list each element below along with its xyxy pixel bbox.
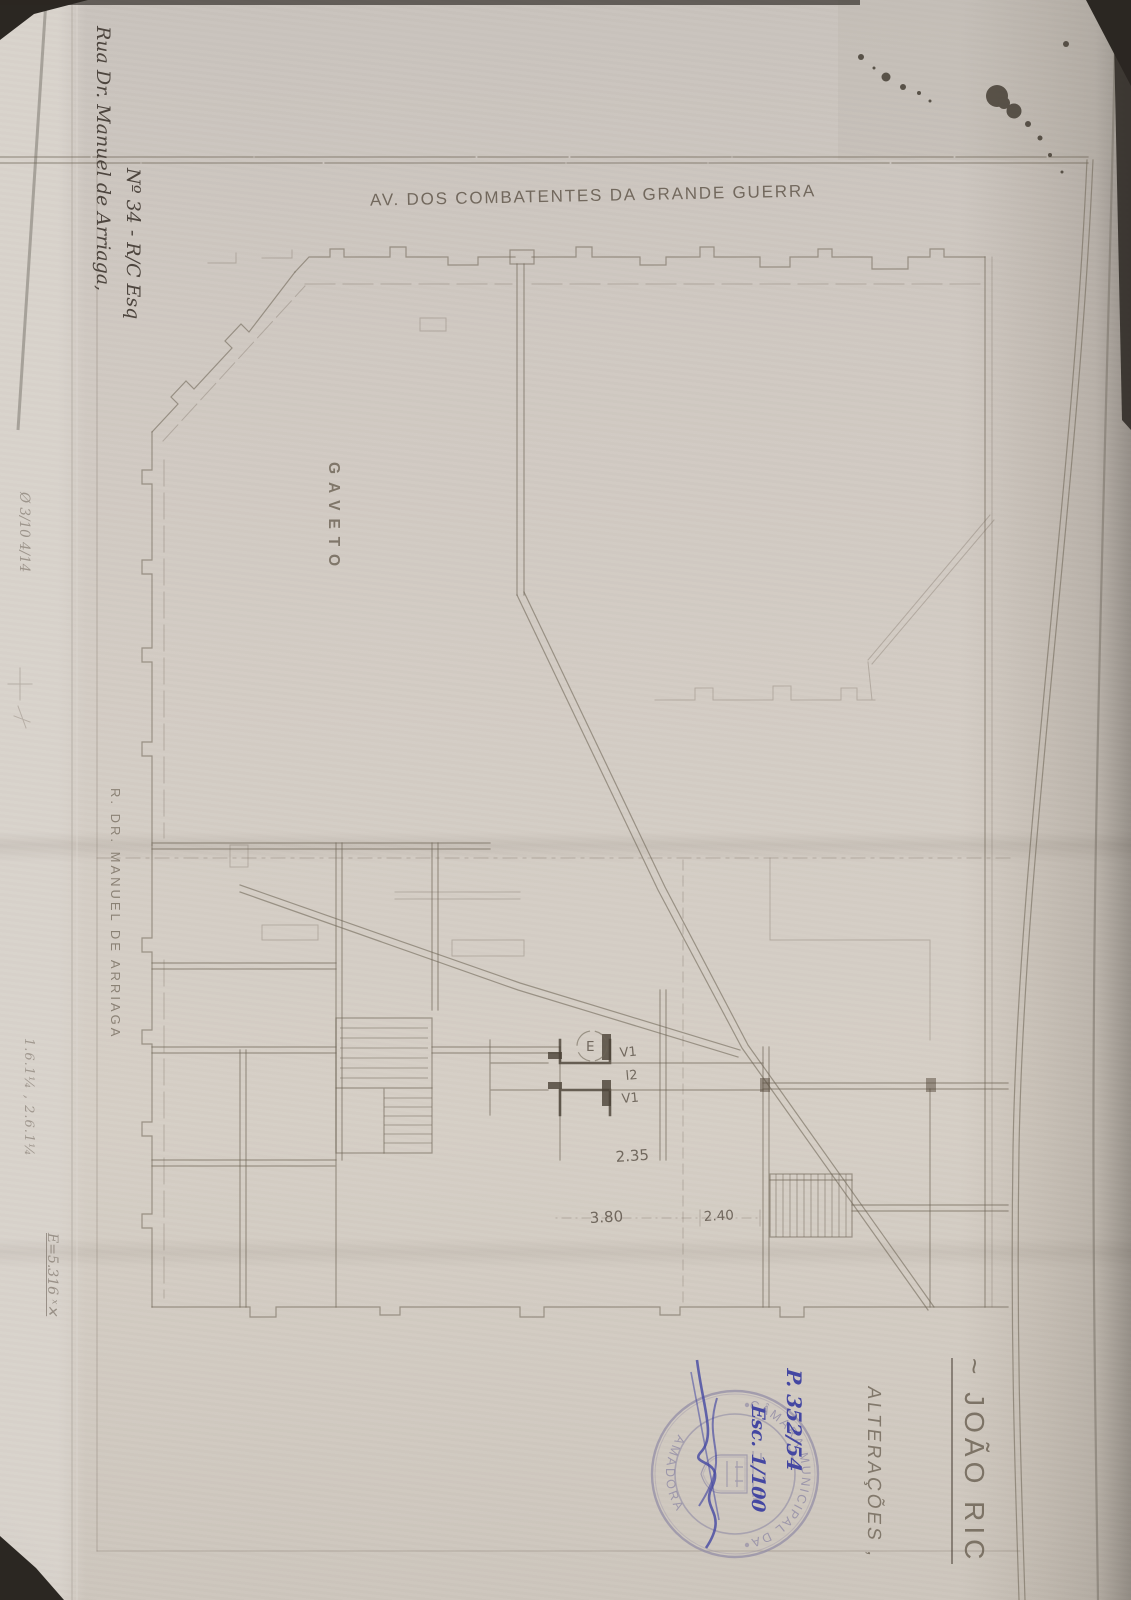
svg-text:AMADORA: AMADORA [663,1433,688,1515]
window-label-v1-bottom: V1 [621,1091,639,1107]
gaveto-corner-label: GAVETO [324,462,342,574]
street-left-label: R. DR. MANUEL DE ARRIAGA [108,788,123,1039]
dimension-3-80: 3.80 [589,1207,623,1227]
floor-plan-linework [8,247,1010,1317]
door-label-l2: l2 [625,1068,638,1084]
dimension-2-35: 2.35 [615,1146,650,1166]
owner-name-title: ~ JOÃO RIC [951,1358,990,1564]
handwritten-address-line1: Rua Dr. Manuel de Arriaga, [92,26,114,291]
dimension-2-40: 2.40 [703,1207,734,1225]
stamp-arc-bottom-text: AMADORA [663,1433,688,1515]
process-number-blue: P. 352/54 [782,1368,806,1473]
window-label-v1-top: V1 [619,1045,637,1061]
pencil-note-upper: Ø 3/10 4/14 [16,492,32,572]
scanned-floor-plan-sheet: E V1 l2 V1 2.35 3.80 2.40 CÂMARA MUNICIP… [0,0,1131,1600]
interior-staircase [336,1018,432,1153]
entrance-letter: E [586,1039,595,1055]
pencil-scale-note: E=5.316 ˣ✕ [44,1233,60,1316]
scale-note-blue: Esc. 1/100 [747,1404,768,1513]
alteracoes-title: ALTERAÇÕES , [862,1385,884,1561]
drawing-margin-frame [0,0,1116,1600]
pencil-note-lower: 1.6.1¼ , 2.6.1¼ [21,1038,36,1157]
exterior-staircase [770,1174,1008,1237]
handwritten-address-line2: Nº 34 - R/C Esq [122,168,144,319]
